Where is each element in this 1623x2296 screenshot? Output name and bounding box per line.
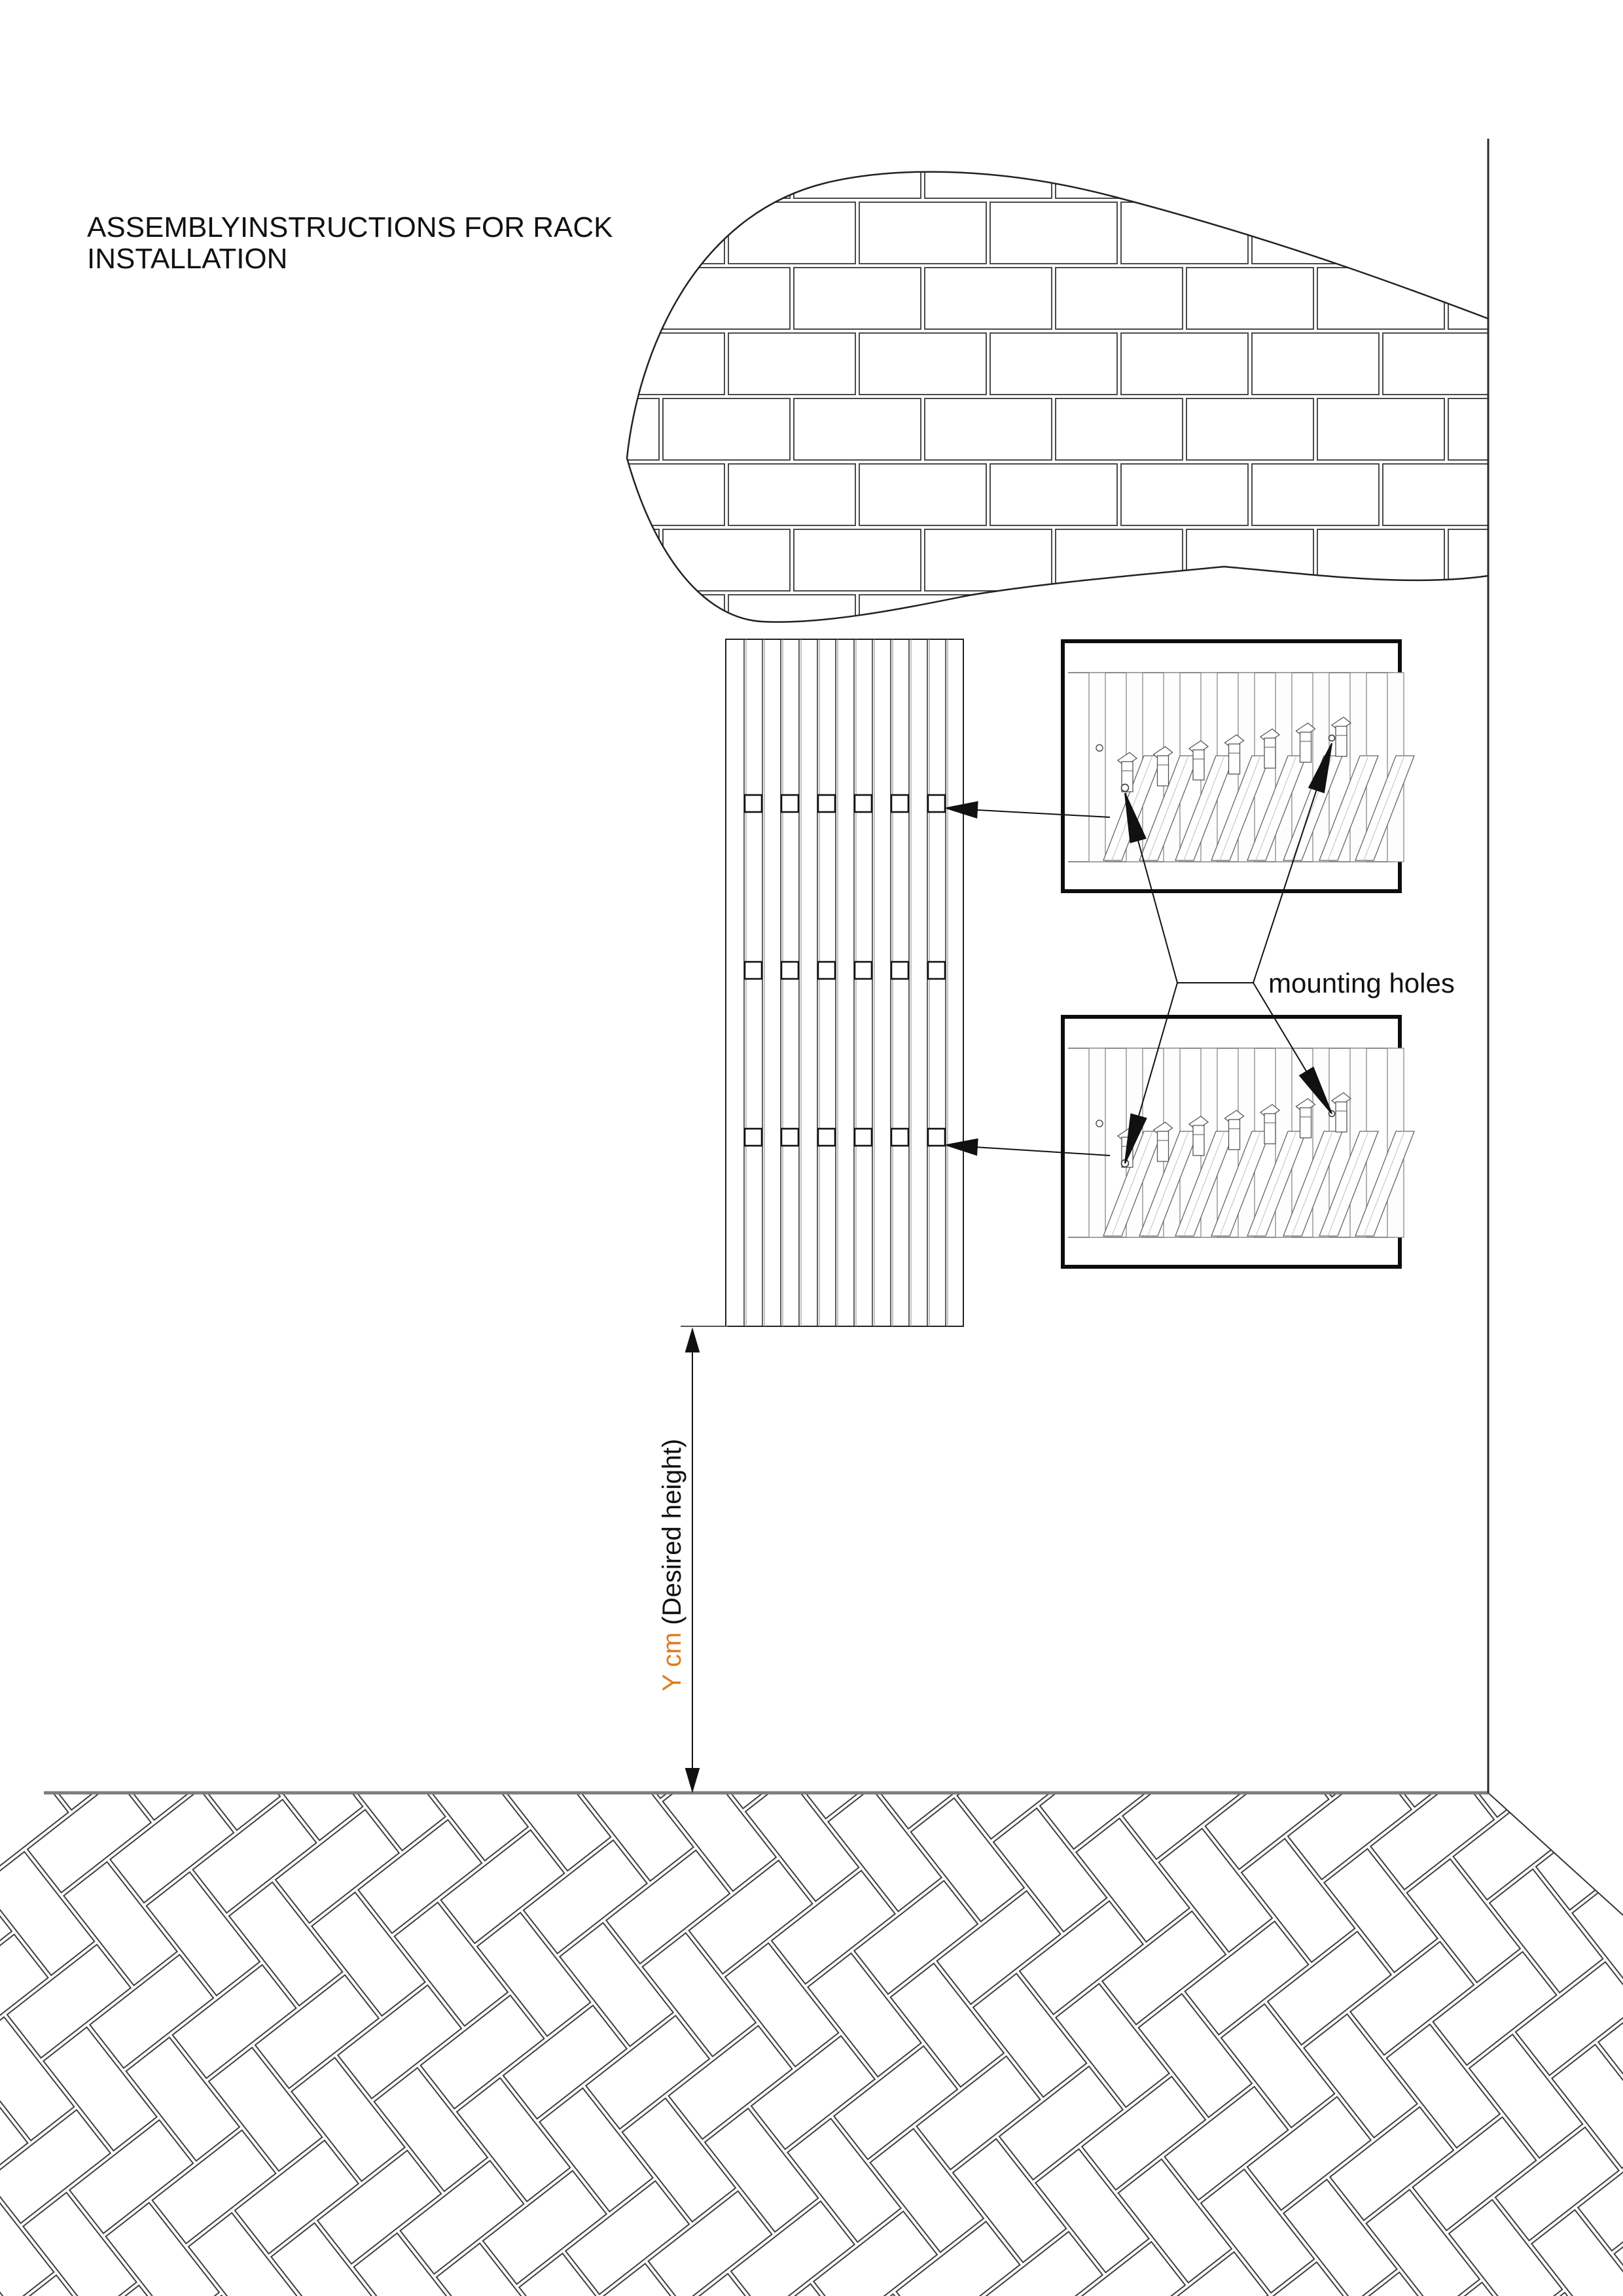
dimension-label: Y cm (Desired height) [658,1439,687,1691]
detail-slat [1089,673,1105,862]
page-title-line1: ASSEMBLYINSTRUCTIONS FOR RACK [87,211,613,243]
detail-slat [1089,1048,1105,1237]
page-title-line2: INSTALLATION [87,243,287,275]
slat-rack [726,639,963,1326]
rack-mounting-hole [818,1129,835,1146]
shelf-hook-body [1300,1108,1311,1138]
shelf-hook-body [1193,1125,1204,1156]
dimension-arrowhead-icon [686,1769,699,1791]
floor-surface [0,1793,1623,2296]
mounting-hole-mark [1122,785,1129,792]
rack-mounting-hole [855,795,872,812]
rack-mounting-hole [855,1129,872,1146]
floor [0,1793,1623,2296]
mounting-holes-label: mounting holes [1268,968,1455,998]
rack-mounting-hole [891,1129,908,1146]
shelf-hook-body [1158,1131,1169,1161]
rack-mounting-hole [745,795,762,812]
shelf-hook-body [1193,750,1204,780]
rack-mounting-hole [818,962,835,979]
shelf-hook-body [1336,1102,1347,1132]
assembly-diagram: ASSEMBLYINSTRUCTIONS FOR RACK INSTALLATI… [0,0,1623,2296]
shelf-hook-body [1264,1114,1275,1144]
rack-mounting-hole [745,1129,762,1146]
rack-mounting-hole [928,962,945,979]
dimension-arrowhead-icon [686,1330,699,1352]
shelf-hook-body [1158,756,1169,786]
shelf-hook-body [1300,732,1311,762]
rack-mounting-hole [818,795,835,812]
rack-mounting-hole [891,795,908,812]
rack-mounting-hole [855,962,872,979]
detail-boxes [1063,641,1414,1267]
shelf-hook-body [1229,1120,1240,1150]
rack-mounting-hole [928,795,945,812]
rack-mounting-hole [891,962,908,979]
rack-mounting-hole [928,1129,945,1146]
dimension-value: Y cm [658,1633,687,1691]
rack-mounting-hole [781,795,798,812]
drawing-page: ASSEMBLYINSTRUCTIONS FOR RACK INSTALLATI… [0,0,1623,2296]
shelf-hook-body [1264,738,1275,768]
rack-mounting-hole [781,962,798,979]
rack-mounting-hole [745,962,762,979]
mounting-hole-mark [1329,735,1335,741]
dimension-description: (Desired height) [658,1439,687,1633]
shelf-hook-body [1229,744,1240,774]
rack-mounting-hole [781,1129,798,1146]
dimension-annotation [681,1326,728,1791]
brick-wall-blob [627,172,1488,622]
shelf-hook-body [1336,726,1347,756]
